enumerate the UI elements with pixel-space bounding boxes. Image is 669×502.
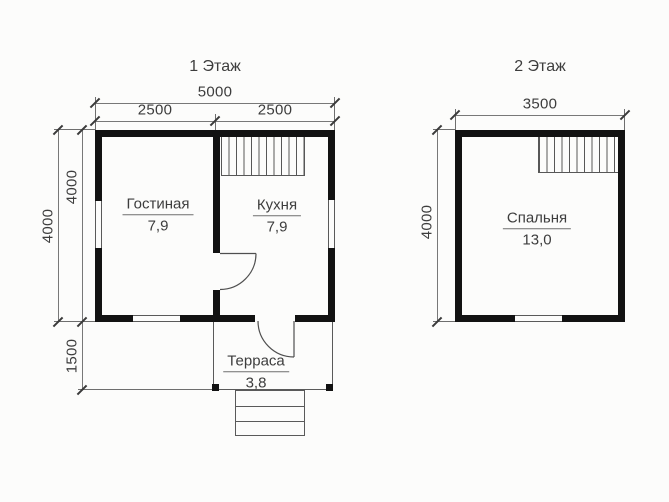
door-arc-layer <box>0 0 669 502</box>
door-arc <box>258 321 294 357</box>
floor-plan-canvas: 1 Этаж 5000 2500 2500 4000 4000 1500 <box>0 0 669 502</box>
door-arc <box>220 254 256 290</box>
